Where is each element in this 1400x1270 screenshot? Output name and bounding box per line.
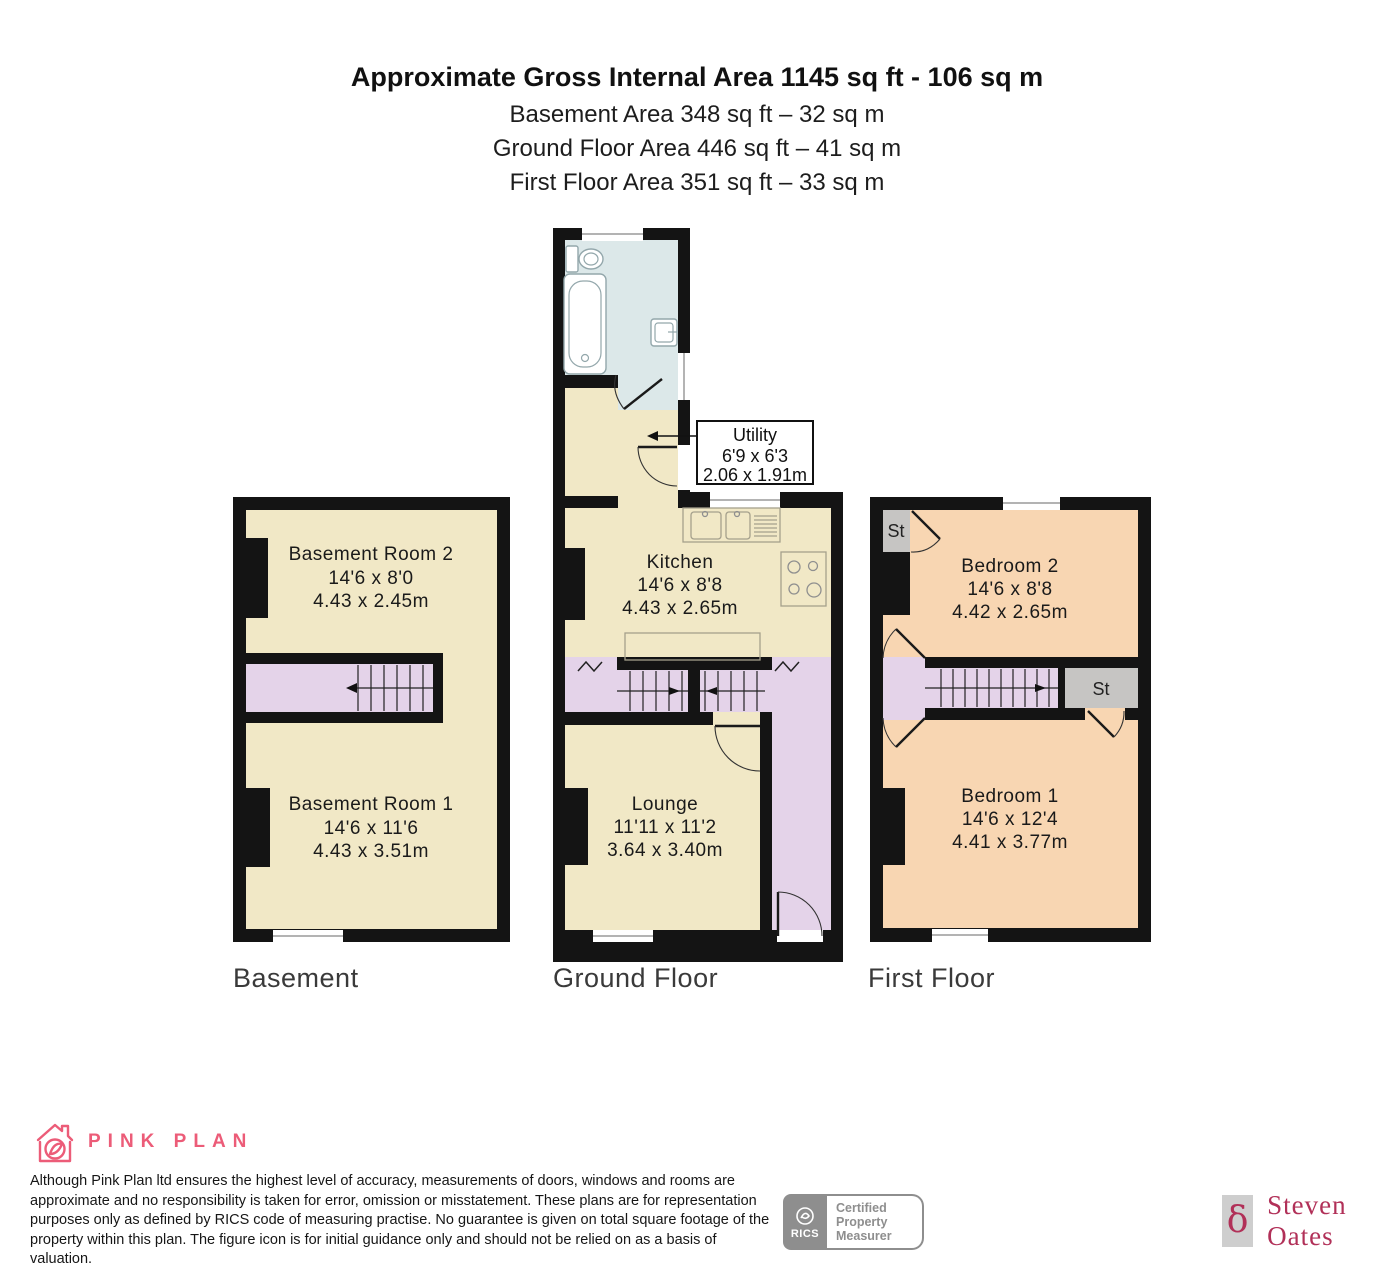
bedroom1-imperial: 14'6 x 12'4: [962, 809, 1058, 830]
bedroom1-chimney: [883, 788, 905, 865]
rics-certification-text: Certified Property Measurer: [827, 1194, 924, 1250]
ground-landing-floor: [565, 657, 617, 712]
basement-room2-name: Basement Room 2: [289, 544, 454, 565]
rics-line: Property: [836, 1215, 922, 1229]
toilet-icon: [566, 246, 603, 272]
rics-logo-box: RICS: [783, 1194, 827, 1250]
agent-name: Steven Oates: [1267, 1190, 1400, 1252]
rics-lion-icon: [794, 1205, 816, 1227]
ground-floor-label: Ground Floor: [553, 963, 718, 993]
bedroom2-imperial: 14'6 x 8'8: [967, 579, 1052, 600]
disclaimer-line: purposes only as defined by RICS code of…: [30, 1211, 778, 1231]
utility-door-gap: [678, 445, 690, 490]
bedroom1-window: [932, 929, 988, 942]
lounge-name: Lounge: [632, 794, 698, 815]
bathroom-sink-icon: [651, 319, 677, 346]
page-title: Approximate Gross Internal Area 1145 sq …: [351, 62, 1043, 92]
agent-logo: δ Steven Oates: [1222, 1190, 1400, 1252]
disclaimer-line: Although Pink Plan ltd ensures the highe…: [30, 1172, 778, 1192]
disclaimer-line: property within this plan. The figure ic…: [30, 1231, 778, 1270]
basement-room1-name: Basement Room 1: [289, 794, 454, 815]
first-floor-label: First Floor: [868, 963, 995, 993]
basement-window: [273, 930, 343, 942]
disclaimer-line: approximate and no responsibility is tak…: [30, 1192, 778, 1212]
basement-chimney-upper: [246, 538, 268, 618]
kitchen-chimney: [565, 548, 585, 620]
first-floor-plan: St St Bedroom 2 14'6 x 8'8 4.42 x 2.65m …: [868, 497, 1151, 993]
bedroom1-name: Bedroom 1: [961, 786, 1058, 807]
kitchen-window: [710, 492, 780, 508]
utility-floor-right: [618, 410, 678, 508]
utility-name: Utility: [733, 425, 777, 445]
basement-room1-imperial: 14'6 x 11'6: [324, 818, 419, 839]
kitchen-metric: 4.43 x 2.65m: [622, 598, 738, 619]
basement-plan: Basement Room 2 14'6 x 8'0 4.43 x 2.45m …: [233, 497, 510, 993]
basement-passage-floor: [443, 653, 497, 723]
lounge-window: [593, 930, 653, 942]
basement-room1-metric: 4.43 x 3.51m: [313, 841, 429, 862]
pink-plan-house-icon: [31, 1119, 79, 1167]
pink-plan-wordmark: PINK PLAN: [88, 1131, 253, 1153]
header: Approximate Gross Internal Area 1145 sq …: [351, 62, 1043, 196]
ground-area-line: Ground Floor Area 446 sq ft – 41 sq m: [493, 135, 901, 162]
bathroom-top-window: [582, 228, 643, 241]
bedroom2-metric: 4.42 x 2.65m: [952, 602, 1068, 623]
first-area-line: First Floor Area 351 sq ft – 33 sq m: [510, 169, 885, 196]
first-landing-floor: [883, 657, 925, 720]
storage-top-left-label: St: [887, 521, 904, 541]
disclaimer: Although Pink Plan ltd ensures the highe…: [30, 1172, 778, 1270]
front-door-gap: [777, 930, 823, 942]
storage-right-label: St: [1092, 679, 1109, 699]
utility-floor-left: [565, 388, 618, 496]
lounge-metric: 3.64 x 3.40m: [607, 840, 723, 861]
agent-delta-icon: δ: [1227, 1203, 1249, 1239]
bathroom-doorway-floor: [618, 375, 678, 410]
bathtub-icon: [564, 274, 606, 374]
kitchen-imperial: 14'6 x 8'8: [637, 575, 722, 596]
utility-imperial: 6'9 x 6'3: [722, 446, 788, 466]
floorplan-page: Approximate Gross Internal Area 1145 sq …: [0, 0, 1400, 1270]
bedroom2-window: [1003, 497, 1060, 510]
rics-wordmark: RICS: [791, 1228, 819, 1240]
utility-metric: 2.06 x 1.91m: [703, 465, 807, 485]
floorplan-drawing: Approximate Gross Internal Area 1145 sq …: [0, 0, 1400, 1060]
agent-symbol-box: δ: [1222, 1195, 1253, 1247]
rics-badge: RICS Certified Property Measurer: [783, 1194, 924, 1250]
bathroom-side-window: [678, 353, 690, 400]
basement-floor-label: Basement: [233, 963, 359, 993]
bedroom1-metric: 4.41 x 3.77m: [952, 832, 1068, 853]
first-wall-block: [883, 552, 910, 615]
rics-line: Certified: [836, 1201, 922, 1215]
lounge-chimney: [565, 788, 588, 865]
basement-room2-metric: 4.43 x 2.45m: [313, 591, 429, 612]
ground-floor-plan: Utility 6'9 x 6'3 2.06 x 1.91m Kitchen 1…: [553, 228, 843, 993]
lounge-imperial: 11'11 x 11'2: [613, 817, 716, 838]
hallway-floor: [772, 657, 831, 930]
rics-line: Measurer: [836, 1229, 922, 1243]
basement-area-line: Basement Area 348 sq ft – 32 sq m: [510, 101, 885, 128]
lounge-door-opening: [713, 712, 760, 725]
basement-chimney-lower: [246, 788, 270, 867]
bedroom2-name: Bedroom 2: [961, 556, 1058, 577]
basement-room2-imperial: 14'6 x 8'0: [328, 568, 413, 589]
kitchen-name: Kitchen: [647, 552, 714, 573]
